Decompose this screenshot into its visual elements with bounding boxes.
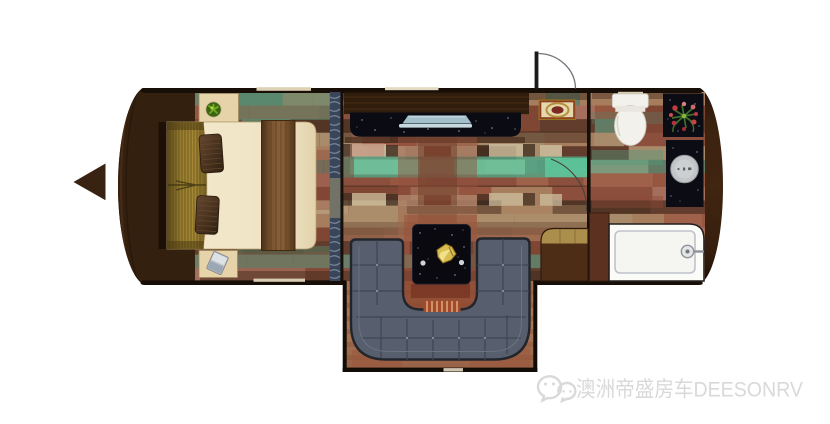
svg-text:澳洲帝盛房车DEESONRV: 澳洲帝盛房车DEESONRV: [576, 378, 804, 402]
